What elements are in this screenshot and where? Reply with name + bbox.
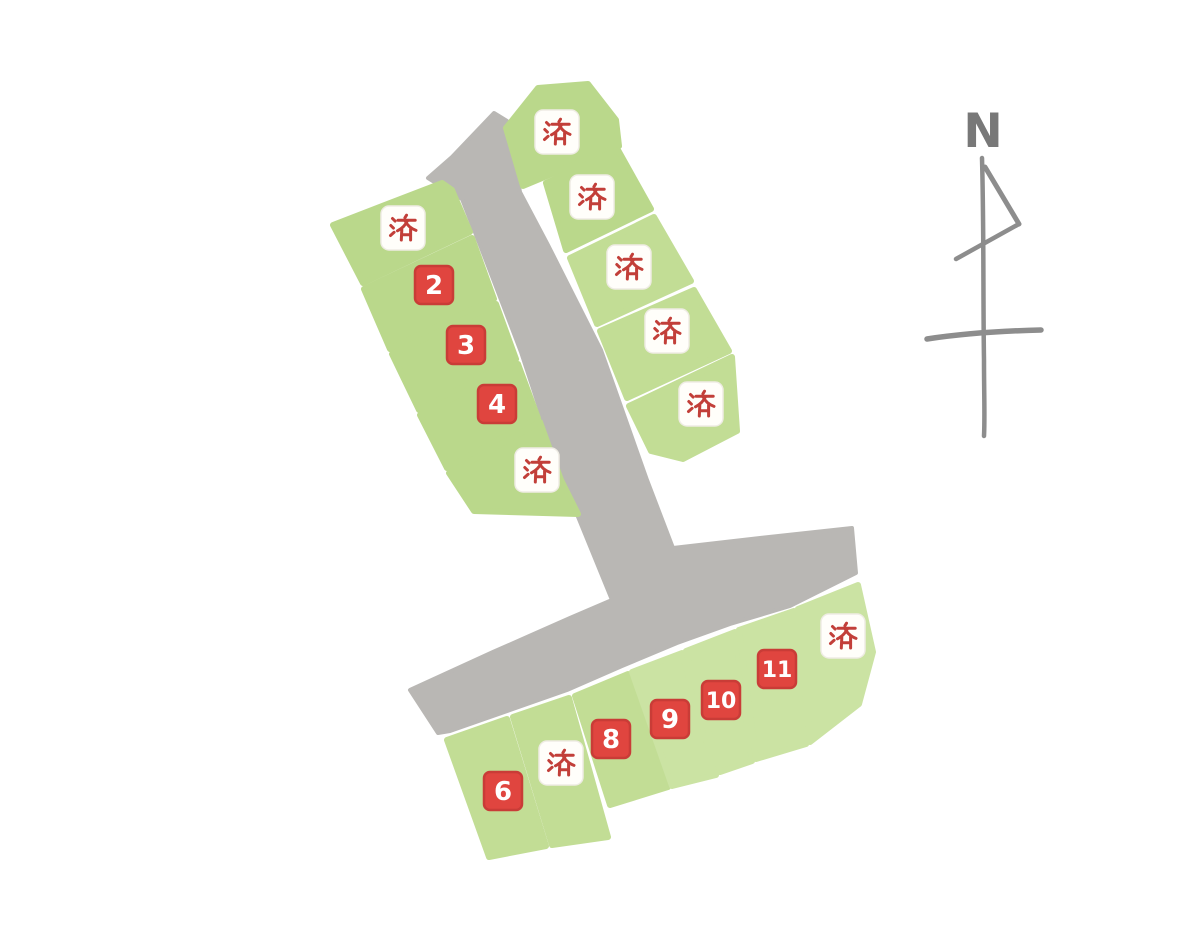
lot-number: 9 <box>661 705 679 735</box>
sold-badge <box>570 175 614 219</box>
sold-badge <box>607 245 651 289</box>
lot-number-badge: 11 <box>758 650 796 688</box>
sold-badge <box>679 382 723 426</box>
lot-number: 4 <box>488 390 506 420</box>
lot-number-badge: 3 <box>447 326 485 364</box>
sold-badge <box>821 614 865 658</box>
lot-number: 3 <box>457 331 475 361</box>
compass-flag-lower <box>956 224 1019 259</box>
lot-number: 11 <box>762 658 793 683</box>
lot-number: 2 <box>425 271 443 301</box>
site-plan-svg: 2 3 4 <box>0 0 1200 938</box>
sold-badge <box>535 110 579 154</box>
lot-number: 6 <box>494 777 512 807</box>
lot-number-badge: 8 <box>592 720 630 758</box>
sold-badge <box>539 741 583 785</box>
compass-north-label: N <box>963 104 1002 159</box>
lot-shape <box>798 585 873 742</box>
subdivision-lot-map: 2 3 4 <box>0 0 1200 938</box>
compass: N <box>927 104 1041 436</box>
sold-badge <box>381 206 425 250</box>
lot-sold[interactable] <box>798 585 873 742</box>
lot-number: 10 <box>706 689 737 714</box>
compass-flag-upper <box>985 167 1019 224</box>
lot-number-badge: 4 <box>478 385 516 423</box>
lot-number-badge: 2 <box>415 266 453 304</box>
sold-badge <box>515 448 559 492</box>
sold-badge <box>645 309 689 353</box>
lot-number: 8 <box>602 725 620 755</box>
lot-number-badge: 10 <box>702 681 740 719</box>
compass-needle-shaft <box>982 158 984 436</box>
lot-number-badge: 6 <box>484 772 522 810</box>
lot-number-badge: 9 <box>651 700 689 738</box>
